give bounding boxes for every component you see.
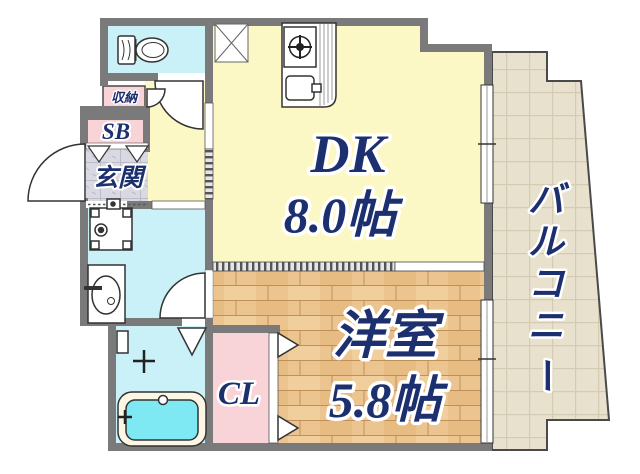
kitchen-counter-icon — [282, 23, 336, 107]
toilet-door-opening — [158, 73, 205, 81]
dk-size-label: 8.0帖 — [284, 187, 404, 243]
partition-track — [213, 262, 395, 271]
storage-label: 収納 — [111, 90, 139, 105]
bath-mirror-icon — [117, 331, 128, 353]
sliding-door-panel — [205, 103, 213, 149]
balcony-label-char: ー — [526, 354, 566, 391]
wall — [205, 325, 280, 333]
balcony-label-char: ニ — [528, 306, 564, 346]
kitchen-sink-icon — [286, 76, 314, 100]
washbasin-icon — [84, 265, 125, 323]
balcony-label-char: コ — [528, 264, 566, 304]
wall — [80, 112, 88, 148]
shoebox-label: SB — [102, 119, 130, 144]
floor-plan-image: DK 8.0帖 洋室 5.8帖 バ ル コ ニ ー 玄関 SB 収納 CL — [0, 0, 640, 474]
wall — [420, 44, 492, 52]
western-room-size-label: 5.8帖 — [329, 372, 449, 428]
dk-label: DK — [309, 124, 389, 184]
balcony-label-char: ル — [528, 222, 566, 262]
closet-label: CL — [218, 376, 260, 412]
washroom-opening — [152, 201, 205, 209]
toilet-icon — [118, 36, 168, 64]
wall — [100, 18, 428, 26]
faucet-icon — [312, 84, 321, 92]
partition-panel — [395, 262, 484, 271]
wall — [80, 106, 150, 120]
floor-plan-svg: DK 8.0帖 洋室 5.8帖 バ ル コ ニ ー 玄関 SB 収納 CL — [0, 0, 640, 474]
wall — [100, 73, 160, 81]
entrance-door-swing — [28, 144, 85, 201]
washroom-door-opening — [205, 270, 213, 318]
balcony-label-char: バ — [528, 180, 570, 220]
closet-door-strip — [269, 333, 278, 443]
wall — [80, 198, 88, 322]
entrance-label: 玄関 — [93, 164, 147, 192]
wall — [108, 322, 116, 451]
bathroom-door-opening — [182, 318, 205, 326]
wall — [205, 18, 213, 450]
refrigerator-space-icon — [215, 24, 248, 62]
sliding-door-track — [205, 149, 213, 199]
western-room-label: 洋室 — [333, 307, 445, 365]
